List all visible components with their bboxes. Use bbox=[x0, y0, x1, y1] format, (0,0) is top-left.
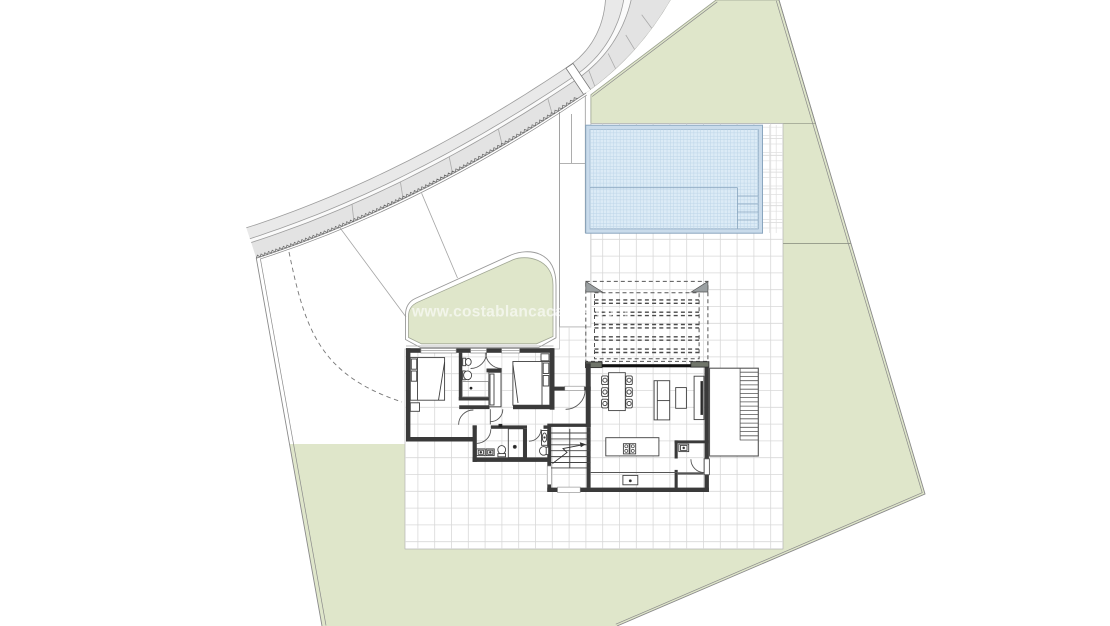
svg-text:www.costablancacasas.com: www.costablancacasas.com bbox=[411, 304, 628, 321]
